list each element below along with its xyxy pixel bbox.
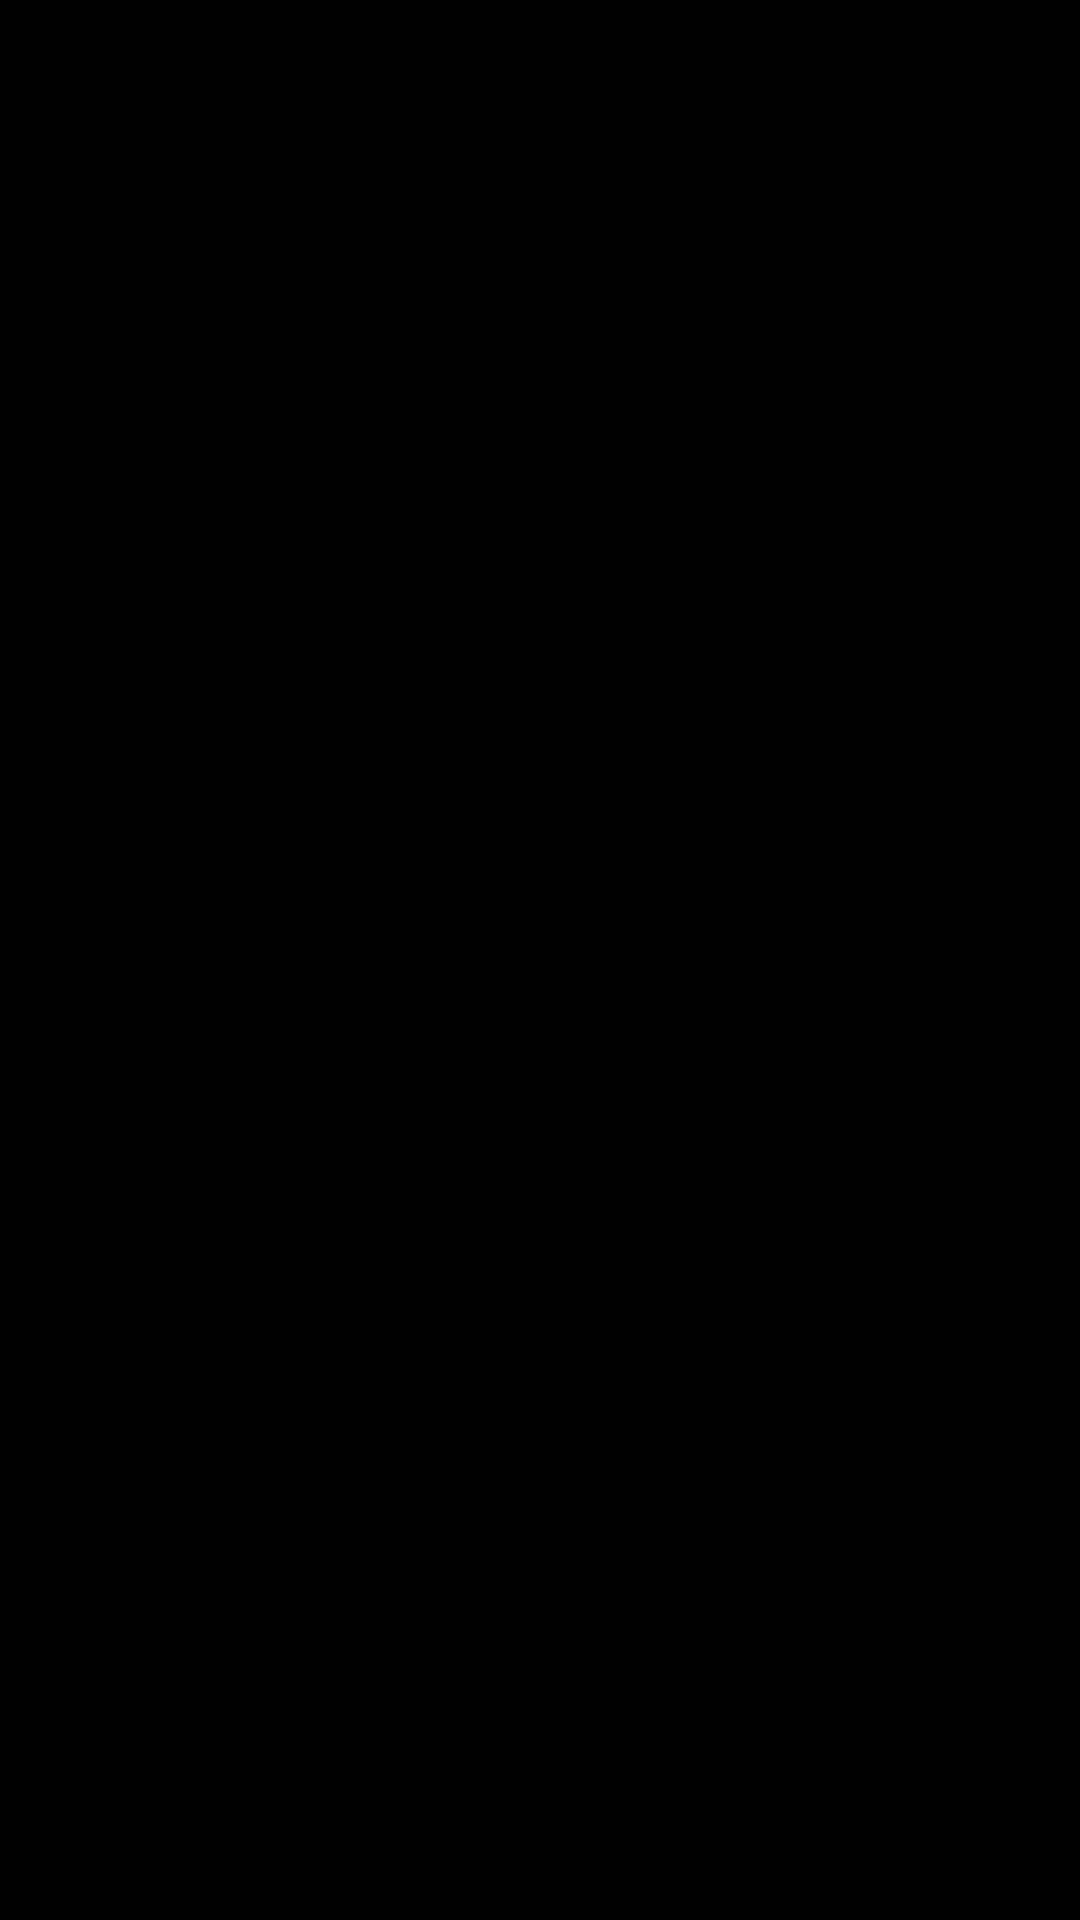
tall-window-pane <box>311 994 329 1120</box>
floorplan-page <box>0 0 1080 1920</box>
sink-faucet-head <box>741 737 748 744</box>
shower-head <box>693 945 701 953</box>
door-leaf <box>514 790 542 946</box>
window-ne-3-pane-2 <box>934 727 958 849</box>
window-ne-3-pane-1 <box>906 706 930 828</box>
window-nw-pane-1 <box>579 532 606 658</box>
window-ne-3-pane-3 <box>962 748 986 870</box>
window-nw-pane-2 <box>544 558 571 685</box>
floorplan-3d-render <box>0 0 1080 1920</box>
door-handle <box>269 1030 274 1035</box>
